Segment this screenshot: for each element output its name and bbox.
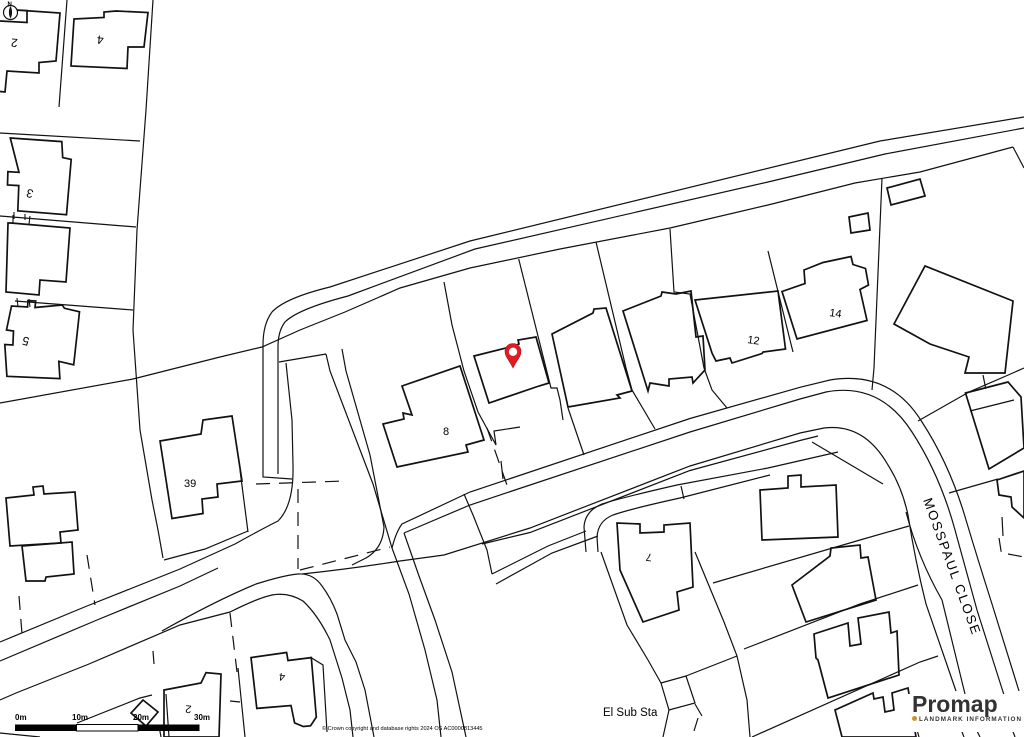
svg-text:12: 12	[747, 334, 761, 348]
svg-text:0m: 0m	[15, 713, 27, 722]
svg-text:10m: 10m	[72, 713, 88, 722]
svg-text:30m: 30m	[194, 713, 210, 722]
svg-text:20m: 20m	[133, 713, 149, 722]
svg-text:© Crown copyright and database: © Crown copyright and database rights 20…	[322, 725, 483, 732]
svg-text:39: 39	[184, 478, 196, 490]
svg-text:El Sub Sta: El Sub Sta	[603, 707, 658, 719]
svg-text:8: 8	[443, 426, 449, 438]
svg-text:N: N	[8, 2, 12, 8]
svg-text:14: 14	[829, 307, 843, 321]
svg-text:2: 2	[185, 702, 192, 714]
